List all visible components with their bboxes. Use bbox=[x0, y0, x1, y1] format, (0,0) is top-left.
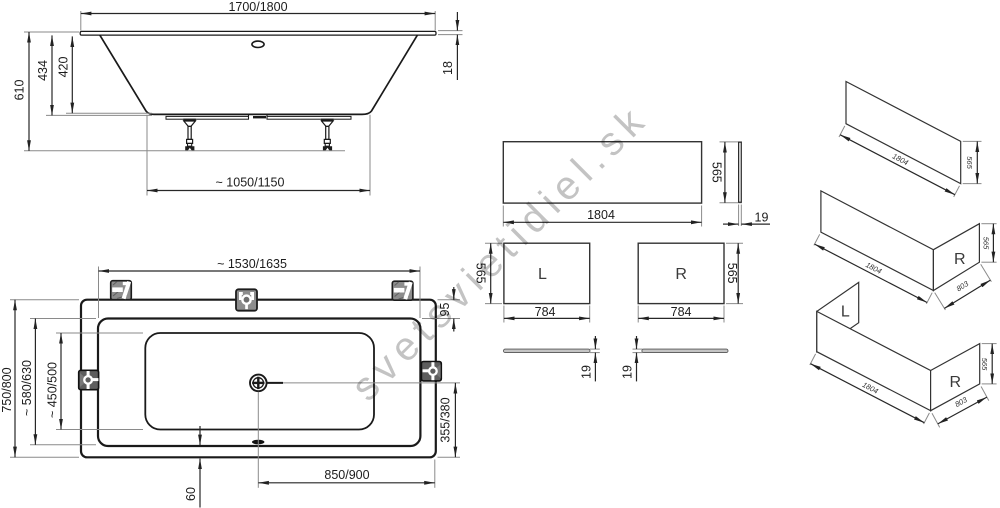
svg-text:750/800: 750/800 bbox=[0, 367, 14, 412]
svg-text:565: 565 bbox=[981, 237, 990, 250]
svg-text:565: 565 bbox=[710, 162, 724, 183]
svg-text:~ 580/630: ~ 580/630 bbox=[20, 360, 34, 416]
svg-text:565: 565 bbox=[980, 358, 989, 371]
svg-text:1700/1800: 1700/1800 bbox=[228, 0, 287, 14]
svg-text:420: 420 bbox=[57, 57, 71, 78]
svg-text:565: 565 bbox=[965, 156, 974, 169]
svg-text:~ 1050/1150: ~ 1050/1150 bbox=[216, 176, 285, 190]
svg-text:803: 803 bbox=[955, 279, 971, 294]
svg-text:355/380: 355/380 bbox=[439, 397, 453, 442]
svg-text:svetsvietidiel.sk: svetsvietidiel.sk bbox=[343, 95, 657, 409]
svg-text:R: R bbox=[950, 374, 962, 391]
svg-text:R: R bbox=[954, 251, 966, 268]
svg-text:610: 610 bbox=[13, 80, 27, 101]
svg-text:L: L bbox=[538, 266, 547, 283]
svg-text:784: 784 bbox=[671, 305, 692, 319]
svg-text:565: 565 bbox=[725, 263, 739, 284]
svg-text:R: R bbox=[675, 266, 687, 283]
svg-text:18: 18 bbox=[441, 61, 455, 75]
svg-text:~ 1530/1635: ~ 1530/1635 bbox=[217, 257, 287, 271]
svg-text:L: L bbox=[841, 303, 850, 320]
svg-text:~ 450/500: ~ 450/500 bbox=[46, 362, 60, 418]
svg-text:60: 60 bbox=[184, 487, 198, 501]
svg-text:19: 19 bbox=[755, 210, 769, 224]
svg-text:1804: 1804 bbox=[587, 208, 615, 222]
svg-text:784: 784 bbox=[535, 305, 556, 319]
svg-text:850/900: 850/900 bbox=[324, 468, 369, 482]
svg-text:434: 434 bbox=[36, 60, 50, 81]
svg-text:19: 19 bbox=[580, 365, 594, 379]
svg-text:19: 19 bbox=[621, 365, 635, 379]
